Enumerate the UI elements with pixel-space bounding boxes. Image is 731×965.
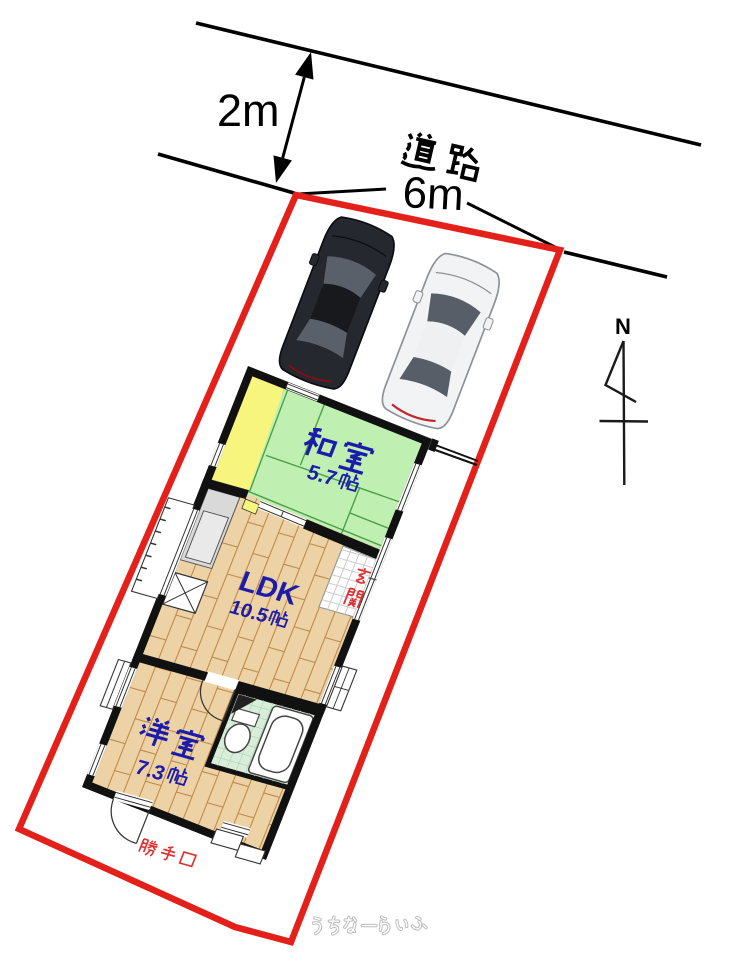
svg-text:N: N: [615, 314, 631, 339]
svg-text:6m: 6m: [401, 168, 465, 220]
svg-text:2m: 2m: [217, 85, 280, 136]
